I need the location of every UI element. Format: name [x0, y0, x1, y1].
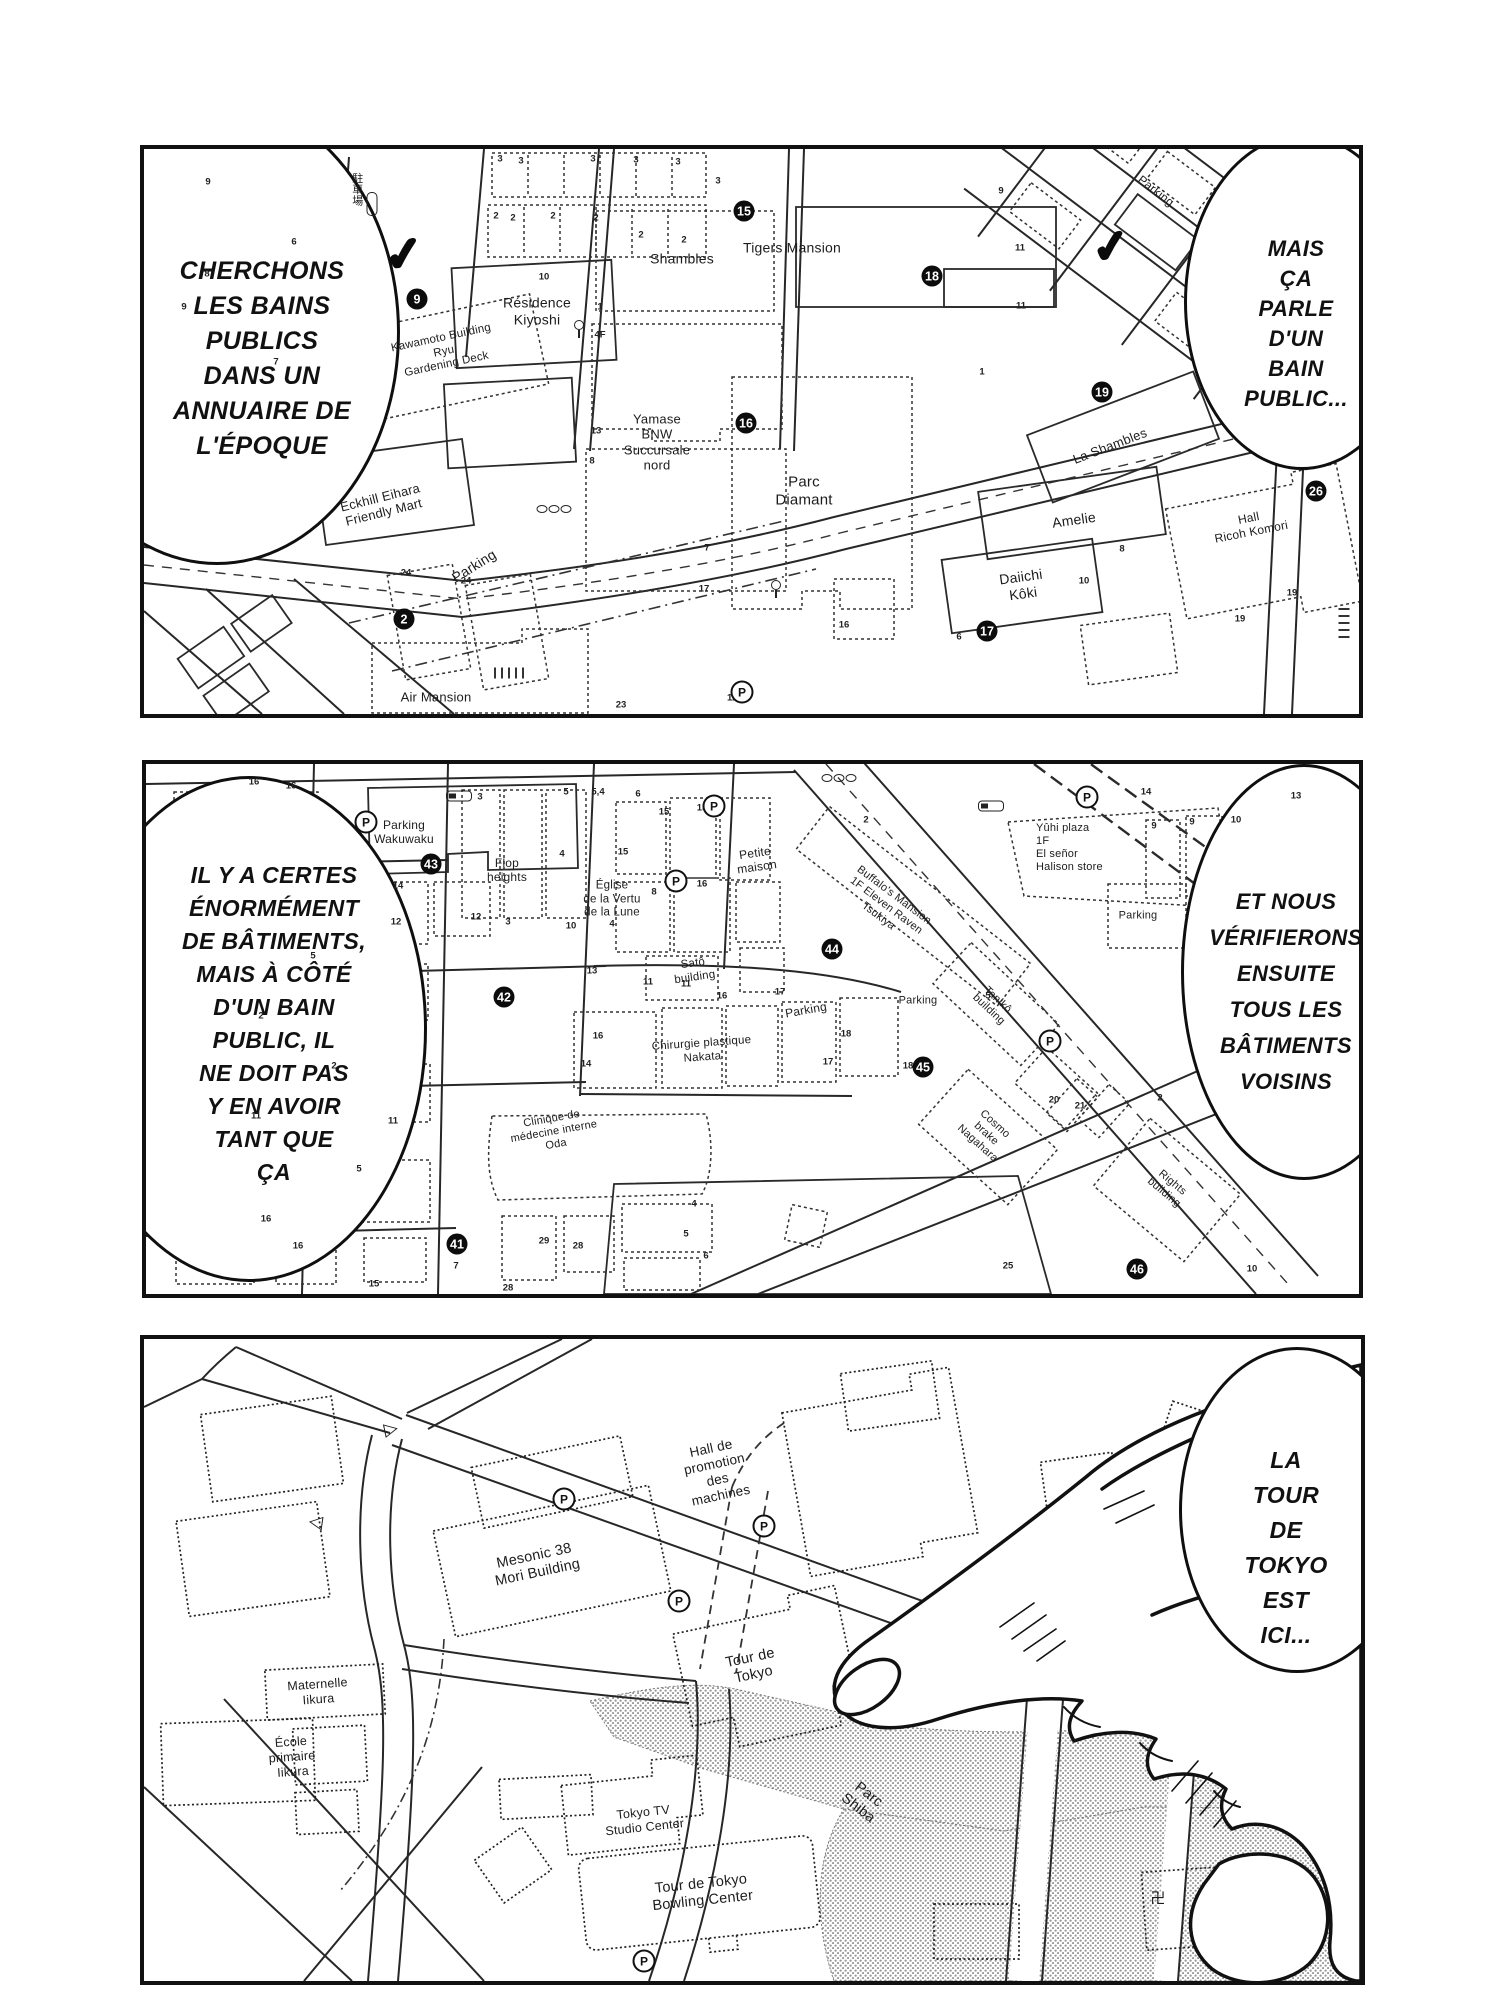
map-label: Yûhi plaza 1F El señor Halison store [1036, 822, 1103, 874]
numbered-circle-marker: 2 [394, 609, 415, 630]
lot-number: 5,4 [591, 787, 604, 798]
oval-shape [834, 774, 845, 782]
lot-number: 15 [618, 847, 629, 858]
map-label: Air Mansion [401, 689, 472, 704]
lot-number: 5 [985, 991, 990, 1002]
map-label: Petite maison [734, 843, 777, 877]
lot-number: 20 [1049, 1095, 1060, 1106]
speech-bubble-batiments-text: IL Y A CERTES ÉNORMÉMENT DE BÂTIMENTS, M… [182, 859, 366, 1189]
map-label: Parc Shiba [837, 1777, 888, 1827]
lot-number: 11 [1016, 301, 1026, 312]
speech-bubble-verifierons-text: ET NOUS VÉRIFIERONS ENSUITE TOUS LES BÂT… [1209, 884, 1363, 1100]
lot-number: 12 [391, 917, 402, 928]
lot-number: 16 [593, 1031, 604, 1042]
parking-icon: P [553, 1488, 576, 1511]
map-label: Flop heights [487, 856, 527, 884]
lot-number: 6 [703, 1251, 708, 1262]
lot-number: 11 [388, 1116, 398, 1127]
lot-number: 3 [477, 792, 482, 803]
lot-number: 4 [559, 849, 564, 860]
gate-bar [449, 794, 456, 799]
lot-number: 8 [1119, 544, 1124, 555]
lot-number: 5 [683, 1229, 688, 1240]
map-label: Rights building [1145, 1165, 1192, 1210]
map-label: Daiichi Kôki [998, 566, 1046, 605]
lot-number: 9 [1151, 821, 1156, 832]
lot-number: 2 [863, 815, 868, 826]
lot-number: 3 [715, 176, 720, 187]
lot-number: 2 [493, 211, 498, 222]
lot-number: 4 [609, 919, 614, 930]
lot-number: 5 [310, 951, 315, 962]
map-label: Yamase BNW Succursale nord [624, 411, 690, 472]
lot-number: 2 [593, 213, 598, 224]
panel-top-map: CHERCHONS LES BAINS PUBLICS DANS UN ANNU… [140, 145, 1363, 718]
lot-number: 24 [461, 576, 472, 587]
pill-icon [367, 192, 378, 216]
lot-number: 9 [205, 177, 210, 188]
checkmark-icon: ✓ [1090, 220, 1132, 275]
lot-number: 18 [841, 1029, 852, 1040]
parking-icon: P [731, 681, 754, 704]
map-label: Maternelle Iikura [287, 1675, 349, 1709]
oval-shape [561, 505, 572, 513]
map-label: Parking [1135, 172, 1177, 209]
signpost-stem [578, 330, 580, 338]
map-label: Chirurgie plastique Nakata [651, 1034, 752, 1068]
signpost-head [574, 320, 584, 330]
lot-number: 6 [956, 632, 961, 643]
parking-icon: P [668, 1590, 691, 1613]
map-label: ◁ [308, 1511, 325, 1534]
lot-number: 16 [261, 1214, 272, 1225]
panel3-overlay: LA TOUR DE TOKYO EST ICI...Hall de promo… [144, 1339, 1361, 1981]
lot-number: 1 [979, 367, 984, 378]
lot-number: 5 [356, 1164, 361, 1175]
lot-number: 5 [563, 787, 568, 798]
crosswalk-icon [494, 668, 524, 679]
map-label: Shambles [650, 251, 714, 268]
numbered-circle-marker: 46 [1127, 1259, 1148, 1280]
parking-icon: P [633, 1950, 656, 1973]
lot-number: 10 [539, 272, 550, 283]
speech-bubble-search-text: CHERCHONS LES BAINS PUBLICS DANS UN ANNU… [173, 254, 351, 464]
lot-number: 10 [1247, 1264, 1258, 1275]
map-label: Cosmo brake Nagahara [954, 1103, 1017, 1165]
lot-number: 8 [651, 887, 656, 898]
lot-number: 16 [697, 879, 708, 890]
map-label: Parking [899, 995, 938, 1008]
map-label: Hall de promotion des machines [679, 1434, 753, 1509]
lot-number: 21 [1075, 1101, 1086, 1112]
lot-number: 3 [633, 155, 638, 166]
numbered-circle-marker: 16 [736, 413, 757, 434]
lot-number: 13 [1291, 791, 1302, 802]
lot-number: 2 [681, 235, 686, 246]
lot-number: 13 [591, 426, 602, 437]
parking-icon: P [355, 811, 378, 834]
lot-number: 2 [510, 213, 515, 224]
parking-icon: P [665, 870, 688, 893]
map-label: Tokyo TV Studio Center [603, 1801, 685, 1839]
lot-number: 3 [590, 154, 595, 165]
lot-number: 2 [331, 1061, 336, 1072]
lot-number: 2 [1157, 1093, 1162, 1104]
gate-icon [446, 791, 472, 802]
triple-oval-icon [822, 774, 857, 782]
map-label: Tanikô building [970, 982, 1017, 1028]
numbered-circle-marker: 17 [977, 621, 998, 642]
lot-number: 9 [1189, 817, 1194, 828]
lot-number: 10 [566, 921, 577, 932]
numbered-circle-marker: 45 [913, 1057, 934, 1078]
numbered-circle-marker: 42 [494, 987, 515, 1008]
signpost-stem [775, 590, 777, 598]
lot-number: 16 [717, 991, 728, 1002]
oval-shape [846, 774, 857, 782]
panel-bottom-map: LA TOUR DE TOKYO EST ICI...Hall de promo… [140, 1335, 1365, 1985]
lot-number: 15 [369, 1279, 380, 1290]
parking-icon: P [1039, 1030, 1062, 1053]
lot-number: 2 [638, 230, 643, 241]
lot-number: 28 [573, 1241, 584, 1252]
map-label: Tour de Tokyo [724, 1645, 780, 1689]
numbered-circle-marker: 26 [1306, 481, 1327, 502]
numbered-circle-marker: 19 [1092, 382, 1113, 403]
map-label: ▷ [382, 1417, 400, 1441]
lot-number: 3 [497, 154, 502, 165]
map-label: Hall Ricoh Komori [1211, 504, 1289, 546]
lot-number: 14 [581, 1059, 592, 1070]
panel1-overlay: CHERCHONS LES BAINS PUBLICS DANS UN ANNU… [144, 149, 1359, 714]
map-label: Amelie [1051, 509, 1097, 531]
map-label: Mesonic 38 Mori Building [490, 1539, 582, 1590]
lot-number: 15 [659, 807, 670, 818]
map-label: École primaire Iikura [267, 1733, 317, 1780]
manga-page: CHERCHONS LES BAINS PUBLICS DANS UN ANNU… [0, 0, 1500, 2000]
lot-number: 13 [587, 966, 598, 977]
lot-number: 11 [643, 977, 653, 988]
map-label: Parking Wakuwaku [374, 818, 434, 846]
lot-number: 19 [1287, 588, 1298, 599]
lot-number: 9 [998, 186, 1003, 197]
lot-number: 7 [273, 357, 278, 368]
gate-icon [978, 801, 1004, 812]
lot-number: 4 [691, 1199, 696, 1210]
lot-number: 17 [699, 584, 710, 595]
lot-number: 11 [1015, 243, 1025, 254]
signpost-icon [574, 320, 584, 338]
gate-bar [981, 804, 988, 809]
lot-number: 16 [286, 781, 297, 792]
lot-number: 4F [594, 330, 605, 341]
lot-number: 8 [204, 269, 209, 280]
speech-bubble-tour-tokyo-text: LA TOUR DE TOKYO EST ICI... [1244, 1443, 1327, 1653]
lot-number: 3 [518, 156, 523, 167]
map-label: Tour de Tokyo Bowling Center [650, 1871, 754, 1916]
signpost-head [771, 580, 781, 590]
speech-bubble-bain-public-text: MAIS ÇA PARLE D'UN BAIN PUBLIC... [1244, 234, 1348, 414]
lot-number: 16 [249, 777, 260, 788]
crosswalk-icon [1339, 604, 1350, 638]
numbered-circle-marker: 43 [421, 854, 442, 875]
lot-number: 25 [1003, 1261, 1014, 1272]
map-label: Église de la Vertu de la Lune [583, 880, 640, 921]
lot-number: 11 [681, 979, 691, 990]
checkmark-icon: ✓ [382, 225, 426, 283]
lot-number: 14 [393, 881, 404, 892]
lot-number: 17 [823, 1057, 834, 1068]
lot-number: 8 [589, 456, 594, 467]
lot-number: 28 [503, 1283, 514, 1294]
numbered-circle-marker: 41 [447, 1234, 468, 1255]
lot-number: 24 [401, 568, 412, 579]
triple-oval-icon [537, 505, 572, 513]
lot-number: 3 [505, 917, 510, 928]
lot-number: 29 [539, 1236, 550, 1247]
map-label: Parking [1119, 910, 1158, 923]
lot-number: 9 [181, 302, 186, 313]
numbered-circle-marker: 9 [407, 289, 428, 310]
map-label: La Shambles [1071, 425, 1149, 467]
parking-icon: P [1076, 786, 1099, 809]
manji-temple-icon: 卍 [1150, 1890, 1165, 1908]
map-label: Kawamoto Building Ryu Gardening Deck [390, 322, 498, 383]
lot-number: 7 [704, 543, 709, 554]
lot-number: 23 [616, 700, 627, 711]
lot-number: 6 [635, 789, 640, 800]
numbered-circle-marker: 44 [822, 939, 843, 960]
map-label: Buffalo's Mansion 1F Eleven Raven Tsukiy… [838, 863, 933, 948]
panel-middle-map: IL Y A CERTES ÉNORMÉMENT DE BÂTIMENTS, M… [142, 760, 1363, 1298]
map-label: Satô building [672, 955, 717, 988]
lot-number: 2 [258, 1011, 263, 1022]
map-label: 駐車場 [350, 172, 362, 206]
numbered-circle-marker: 18 [922, 266, 943, 287]
numbered-circle-marker: 15 [734, 201, 755, 222]
map-label: Résidence Kiyoshi [503, 294, 571, 327]
parking-icon: P [703, 795, 726, 818]
oval-shape [549, 505, 560, 513]
lot-number: 12 [471, 912, 482, 923]
lot-number: 14 [1141, 787, 1152, 798]
map-label: Parking [784, 999, 828, 1020]
lot-number: 19 [1235, 614, 1246, 625]
map-label: Tigers Mansion [743, 240, 841, 257]
lot-number: 1 [597, 302, 602, 313]
parking-icon: P [753, 1515, 776, 1538]
oval-shape [822, 774, 833, 782]
panel2-overlay: IL Y A CERTES ÉNORMÉMENT DE BÂTIMENTS, M… [146, 764, 1359, 1294]
map-label: Parc Diamant [775, 473, 832, 508]
lot-number: 2 [550, 211, 555, 222]
signpost-icon [771, 580, 781, 598]
lot-number: 6 [291, 237, 296, 248]
lot-number: 11 [251, 1111, 261, 1122]
lot-number: 16 [293, 1241, 304, 1252]
lot-number: 7 [453, 1261, 458, 1272]
lot-number: 17 [775, 987, 786, 998]
oval-shape [537, 505, 548, 513]
lot-number: 10 [1079, 576, 1090, 587]
lot-number: 3 [675, 157, 680, 168]
lot-number: 10 [1231, 815, 1242, 826]
lot-number: 16 [839, 620, 850, 631]
map-label: Clinique de médecine interne Oda [507, 1105, 600, 1159]
map-label: Parking [449, 546, 499, 586]
